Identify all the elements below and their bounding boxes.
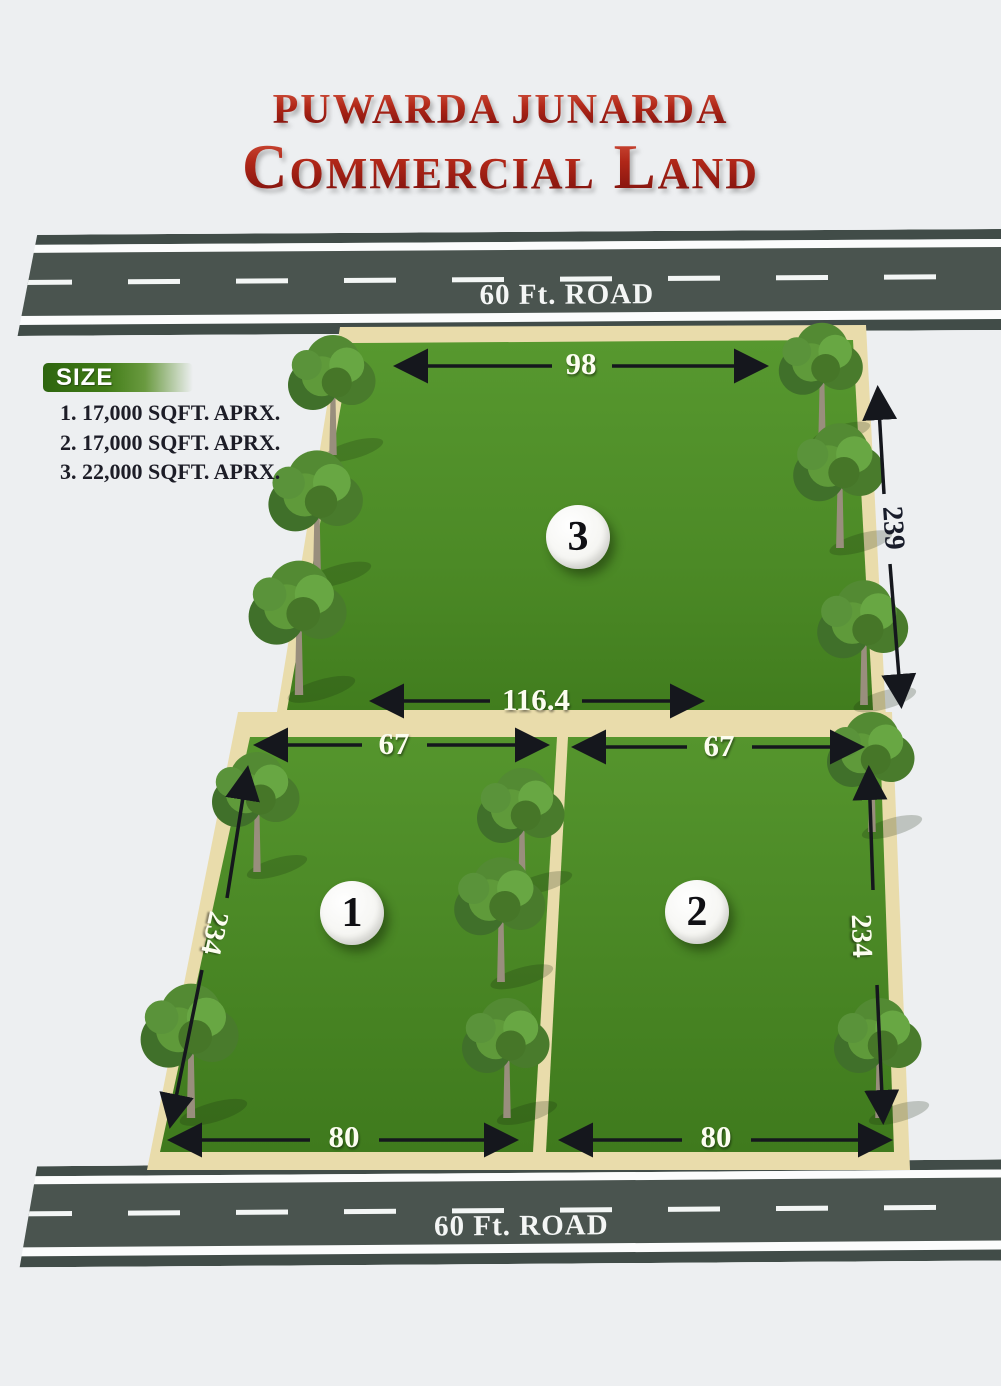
plot1-number: 1 xyxy=(342,889,363,937)
plot3-top-dimension: 98 xyxy=(566,346,597,382)
plot3-bottom-dimension: 116.4 xyxy=(502,682,570,718)
plot2-number-badge: 2 xyxy=(665,880,729,944)
plot3-side-dimension: 239 xyxy=(875,505,911,551)
plot1-number-badge: 1 xyxy=(320,881,384,945)
plot2-bottom-dimension: 80 xyxy=(701,1119,732,1155)
size-legend-header-bar: SIZE xyxy=(43,363,193,392)
plot1-top-dimension: 67 xyxy=(379,726,410,762)
plot2-number: 2 xyxy=(687,888,708,936)
land-diagram xyxy=(0,0,1001,1386)
plot2-side-dimension: 234 xyxy=(844,914,878,959)
legend-item-1: 1. 17,000 SQFT. APRX. xyxy=(60,398,280,428)
size-legend-list: 1. 17,000 SQFT. APRX. 2. 17,000 SQFT. AP… xyxy=(60,398,280,487)
plot-2-area xyxy=(546,737,894,1152)
plot1-bottom-dimension: 80 xyxy=(329,1119,360,1155)
plot3-number: 3 xyxy=(568,513,589,561)
plot2-top-dimension: 67 xyxy=(704,728,735,764)
size-legend-title: SIZE xyxy=(43,364,113,392)
plot3-number-badge: 3 xyxy=(546,505,610,569)
legend-item-3: 3. 22,000 SQFT. APRX. xyxy=(60,457,280,487)
flyer: PUWARDA JUNARDA Commercial Land 60 Ft. R… xyxy=(0,0,1001,1386)
legend-item-2: 2. 17,000 SQFT. APRX. xyxy=(60,428,280,458)
